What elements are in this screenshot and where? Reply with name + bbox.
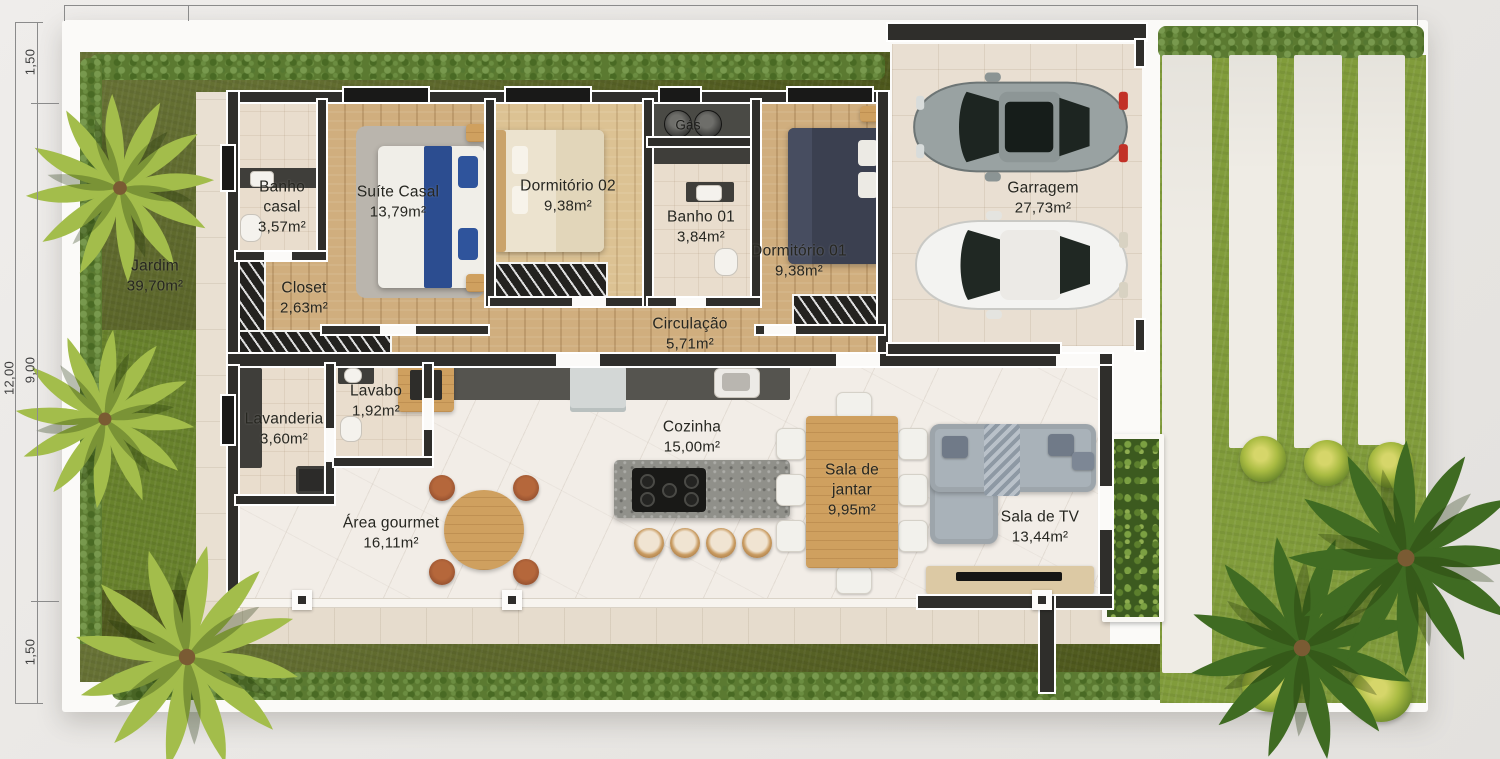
room-name: Jardim	[127, 256, 183, 276]
palm-tree	[12, 326, 198, 512]
wall	[318, 100, 326, 258]
patio-edge	[238, 598, 922, 608]
door-opening	[380, 326, 416, 334]
yard-divider-wall	[1040, 596, 1054, 692]
room-label-suite-casal: Suíte Casal 13,79m²	[357, 182, 439, 221]
dimension-label-total: 12,00	[2, 361, 17, 395]
room-area: 27,73m²	[1007, 198, 1078, 217]
dining-chair	[836, 566, 872, 594]
room-name: Dormitório 02	[520, 176, 616, 196]
dining-chair	[776, 428, 806, 460]
room-name: Cozinha	[663, 417, 721, 437]
room-area: 3,84m²	[667, 227, 735, 246]
room-label-dormitorio-01: Dormitório 01 9,38m²	[751, 241, 847, 280]
room-area: 13,44m²	[1001, 527, 1079, 546]
room-label-garagem: Garragem 27,73m²	[1007, 178, 1078, 217]
window	[222, 146, 234, 190]
dimension-tick	[31, 103, 59, 104]
wall	[228, 92, 238, 364]
dining-chair	[898, 428, 928, 460]
dimension-tick	[15, 22, 43, 23]
room-name: Gás	[675, 116, 700, 133]
gourmet-chair	[429, 559, 455, 585]
porch-column	[502, 590, 522, 610]
dorm01-pillow	[858, 172, 878, 198]
bar-stool	[634, 528, 664, 558]
hedge-top-right	[1158, 26, 1424, 58]
tv-screen	[956, 572, 1062, 581]
room-name: Circulação	[652, 314, 727, 334]
sofa-pillow	[1048, 434, 1074, 456]
room-area: 5,71m²	[652, 334, 727, 353]
room-label-dormitorio-02: Dormitório 02 9,38m²	[520, 176, 616, 215]
suite-pillow	[458, 156, 478, 188]
wall	[878, 92, 888, 366]
room-area: 2,63m²	[280, 298, 328, 317]
nightstand	[860, 106, 880, 122]
gourmet-chair	[429, 475, 455, 501]
room-area: 9,38m²	[520, 196, 616, 215]
room-name: Lavabo	[350, 381, 402, 401]
door-opening	[764, 326, 796, 334]
shrub	[1240, 436, 1286, 482]
room-name: Banho casal	[248, 178, 316, 218]
room-name: Suíte Casal	[357, 182, 439, 202]
door-opening	[424, 398, 432, 430]
suite-pillow	[458, 228, 478, 260]
room-area: 9,38m²	[751, 261, 847, 280]
dining-chair	[776, 474, 806, 506]
porch-column	[1032, 590, 1052, 610]
garage-top-wall	[888, 24, 1146, 40]
garage-post	[1136, 320, 1144, 350]
room-name: Área gourmet	[343, 513, 439, 533]
dining-chair	[898, 474, 928, 506]
wall	[918, 596, 1112, 608]
room-label-banho-01: Banho 01 3,84m²	[667, 207, 735, 246]
wall	[648, 138, 760, 146]
room-area: 3,60m²	[245, 429, 324, 448]
room-label-lavabo: Lavabo 1,92m²	[350, 381, 402, 420]
palm-tree	[1284, 436, 1500, 680]
garage-bottom-wall	[888, 344, 1060, 354]
nightstand	[466, 124, 486, 142]
dorm02-wardrobe	[492, 262, 608, 298]
door-opening	[326, 428, 334, 462]
dimension-tick	[15, 703, 43, 704]
dimension-label-top-segment: 1,50	[23, 49, 38, 76]
room-label-gas: Gás	[675, 116, 700, 133]
dorm02-pillow	[512, 146, 528, 174]
room-label-sala-de-tv: Sala de TV 13,44m²	[1001, 507, 1079, 546]
room-name: Closet	[280, 278, 328, 298]
room-area: 15,00m²	[663, 437, 721, 456]
bar-stool	[706, 528, 736, 558]
dimension-line-top	[64, 5, 1418, 6]
dining-chair	[776, 520, 806, 552]
sofa-pillow	[942, 436, 968, 458]
cooktop	[632, 468, 706, 512]
dimension-tick	[1417, 5, 1418, 25]
room-name: Dormitório 01	[751, 241, 847, 261]
room-label-closet: Closet 2,63m²	[280, 278, 328, 317]
bar-stool	[742, 528, 772, 558]
window	[788, 88, 872, 102]
car-grey	[898, 70, 1140, 184]
dimension-label-bottom-segment: 1,50	[23, 639, 38, 666]
floor-plan-render: Jardim 39,70m² Banho casal 3,57m² Suíte …	[0, 0, 1500, 759]
room-area: 16,11m²	[343, 533, 439, 552]
dimension-tick	[31, 601, 59, 602]
room-label-sala-de-jantar: Sala de jantar 9,95m²	[823, 461, 881, 520]
wall	[490, 298, 652, 306]
wall	[334, 458, 432, 466]
door-opening	[836, 354, 880, 366]
dorm01-pillow	[858, 140, 878, 166]
nightstand	[466, 274, 486, 292]
room-label-banho-casal: Banho casal 3,57m²	[248, 178, 316, 237]
room-label-jardim: Jardim 39,70m²	[127, 256, 183, 295]
door-opening	[572, 298, 606, 306]
dining-chair	[898, 520, 928, 552]
room-area: 1,92m²	[350, 401, 402, 420]
room-name: Garragem	[1007, 178, 1078, 198]
door-opening	[556, 354, 600, 366]
room-name: Lavanderia	[245, 409, 324, 429]
fridge	[570, 366, 626, 412]
window	[344, 88, 428, 102]
room-label-cozinha: Cozinha 15,00m²	[663, 417, 721, 456]
window	[222, 396, 234, 444]
room-name: Banho 01	[667, 207, 735, 227]
room-name: Sala de TV	[1001, 507, 1079, 527]
door-opening	[1100, 486, 1112, 530]
banho01-sink	[696, 185, 722, 201]
driveway-strip-4	[1358, 55, 1405, 445]
room-area: 9,95m²	[823, 500, 881, 519]
dimension-tick	[188, 5, 189, 21]
hedge-top	[90, 54, 885, 80]
palm-tree	[22, 90, 218, 286]
kitchen-sink-basin	[722, 373, 750, 391]
gourmet-round-table	[444, 490, 524, 570]
room-area: 13,79m²	[357, 202, 439, 221]
driveway-strip-2	[1229, 55, 1277, 448]
driveway-strip-3	[1294, 55, 1342, 448]
gourmet-chair	[513, 559, 539, 585]
room-label-circulacao: Circulação 5,71m²	[652, 314, 727, 353]
door-opening	[1056, 354, 1100, 366]
sofa-throw-blanket	[984, 424, 1020, 496]
window	[506, 88, 590, 102]
wall	[236, 496, 334, 504]
dorm02-headboard	[494, 130, 506, 252]
room-area: 3,57m²	[248, 217, 316, 236]
gourmet-chair	[513, 475, 539, 501]
room-label-area-gourmet: Área gourmet 16,11m²	[343, 513, 439, 552]
dimension-label-middle-segment: 9,00	[23, 357, 38, 384]
door-opening	[264, 252, 292, 260]
garage-post	[1136, 40, 1144, 66]
dimension-tick	[64, 5, 65, 21]
sofa-pillow	[1072, 452, 1094, 470]
car-white	[900, 210, 1140, 320]
wall	[486, 100, 494, 306]
room-name: Sala de jantar	[823, 461, 881, 501]
door-opening	[676, 298, 706, 306]
bar-stool	[670, 528, 700, 558]
dorm01-wardrobe	[792, 294, 888, 328]
room-label-lavanderia: Lavanderia 3,60m²	[245, 409, 324, 448]
washing-machine	[296, 466, 326, 494]
wall	[644, 100, 652, 306]
room-area: 39,70m²	[127, 276, 183, 295]
window	[660, 88, 700, 102]
wall	[228, 354, 1112, 366]
banho01-toilet	[714, 248, 738, 276]
palm-tree	[70, 540, 304, 759]
banho01-shower	[652, 146, 754, 164]
